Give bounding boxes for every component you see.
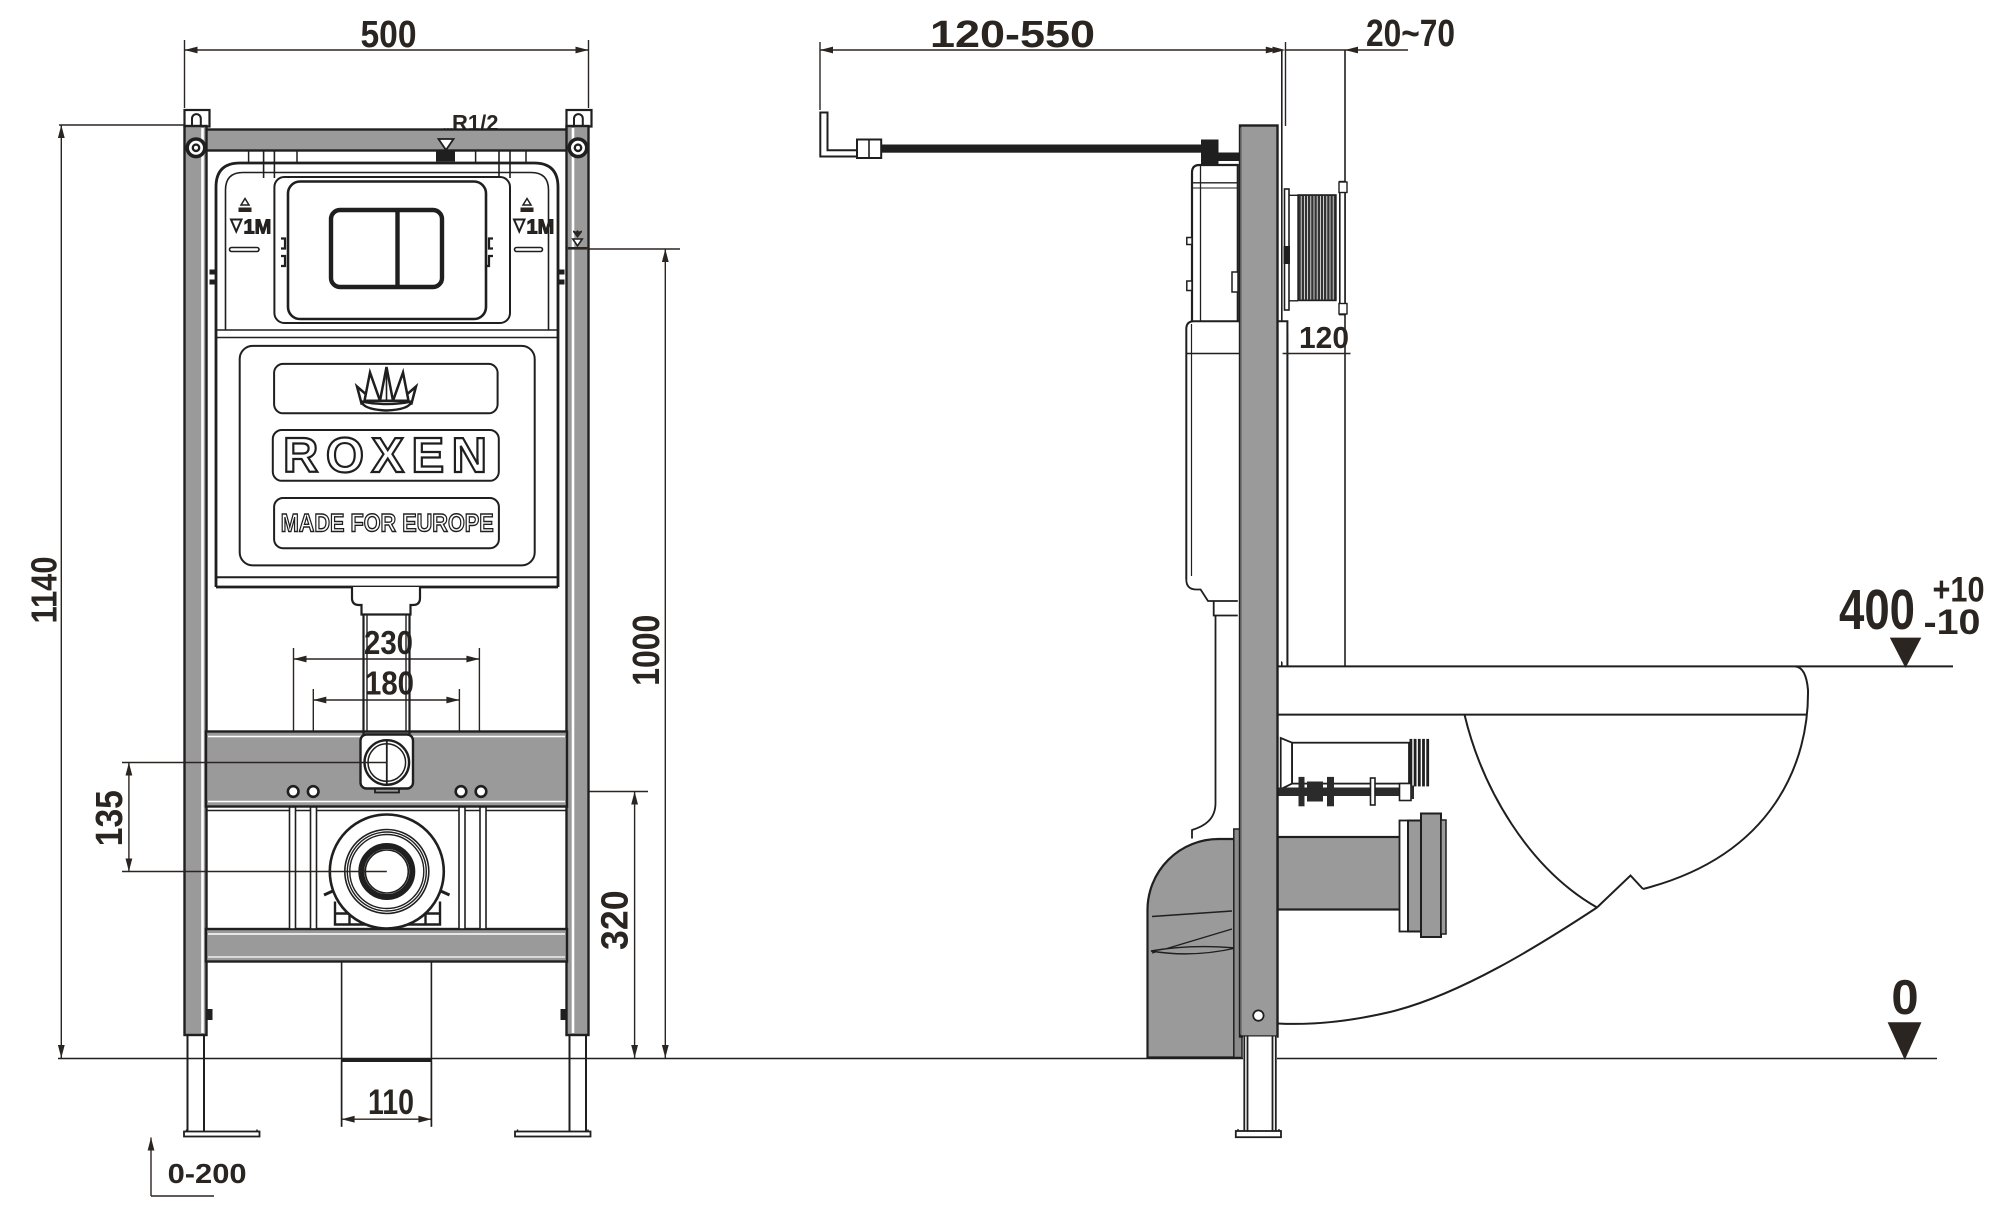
svg-text:MADE FOR EUROPE: MADE FOR EUROPE (281, 510, 494, 538)
svg-text:110: 110 (368, 1083, 414, 1122)
svg-text:-10: -10 (1924, 603, 1981, 642)
svg-text:120-550: 120-550 (930, 14, 1095, 56)
svg-text:500: 500 (361, 14, 417, 56)
svg-text:0-200: 0-200 (168, 1158, 247, 1189)
svg-text:320: 320 (595, 890, 637, 950)
svg-text:0: 0 (1891, 971, 1918, 1025)
svg-text:1000: 1000 (626, 615, 668, 686)
svg-text:1M: 1M (527, 217, 555, 239)
svg-text:400: 400 (1839, 578, 1915, 642)
svg-text:1M: 1M (244, 217, 272, 239)
svg-text:135: 135 (89, 790, 131, 846)
svg-text:ROXEN: ROXEN (283, 429, 487, 483)
svg-text:1140: 1140 (23, 557, 64, 624)
svg-text:120: 120 (1299, 320, 1349, 355)
svg-text:20~70: 20~70 (1366, 13, 1455, 55)
